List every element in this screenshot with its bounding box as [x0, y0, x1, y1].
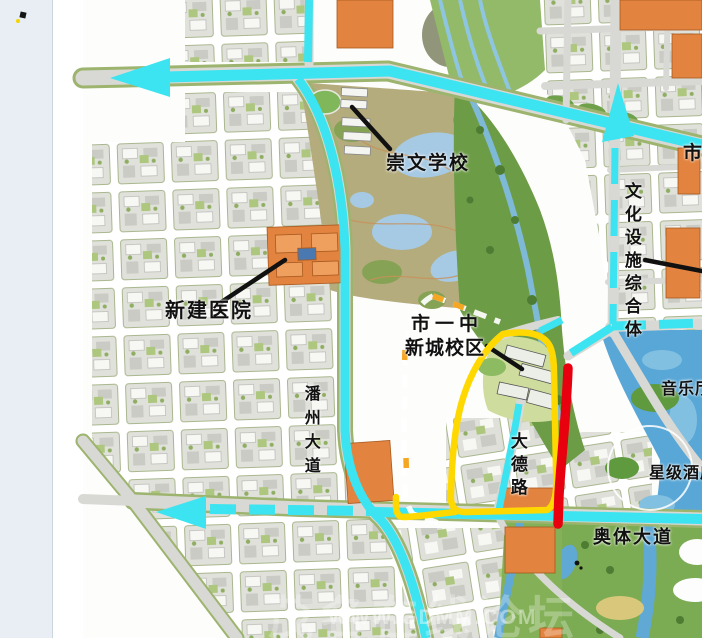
forum-page: 崇文学校 新建医院 市一中 新城校区 文化设施综合体 市 音乐厅 星级酒店 奥体… [0, 0, 702, 638]
label-city-cut: 市 [683, 144, 702, 164]
label-cultural-complex: 文化设施综合体 [622, 182, 640, 343]
label-star-hotel: 星级酒店 [649, 466, 702, 483]
label-no1-middle-line1: 市一中 [411, 315, 483, 335]
page-left-panel [0, 0, 53, 638]
label-new-hospital: 新建医院 [165, 301, 253, 322]
label-no1-middle-line2: 新城校区 [405, 339, 485, 359]
label-dade-road: 大德路 [508, 432, 526, 501]
bullet-icon [19, 11, 26, 18]
watermark-site-url: WWW.GDMM.COM [328, 606, 537, 630]
label-panzhou-avenue: 潘州大道 [301, 385, 318, 481]
label-chongwen-school: 崇文学校 [386, 154, 470, 174]
label-music-hall: 音乐厅 [661, 382, 702, 399]
new-hospital-buildings [267, 225, 347, 286]
marker-dot-icon [16, 19, 20, 23]
label-aoti-avenue: 奥体大道 [593, 528, 673, 547]
